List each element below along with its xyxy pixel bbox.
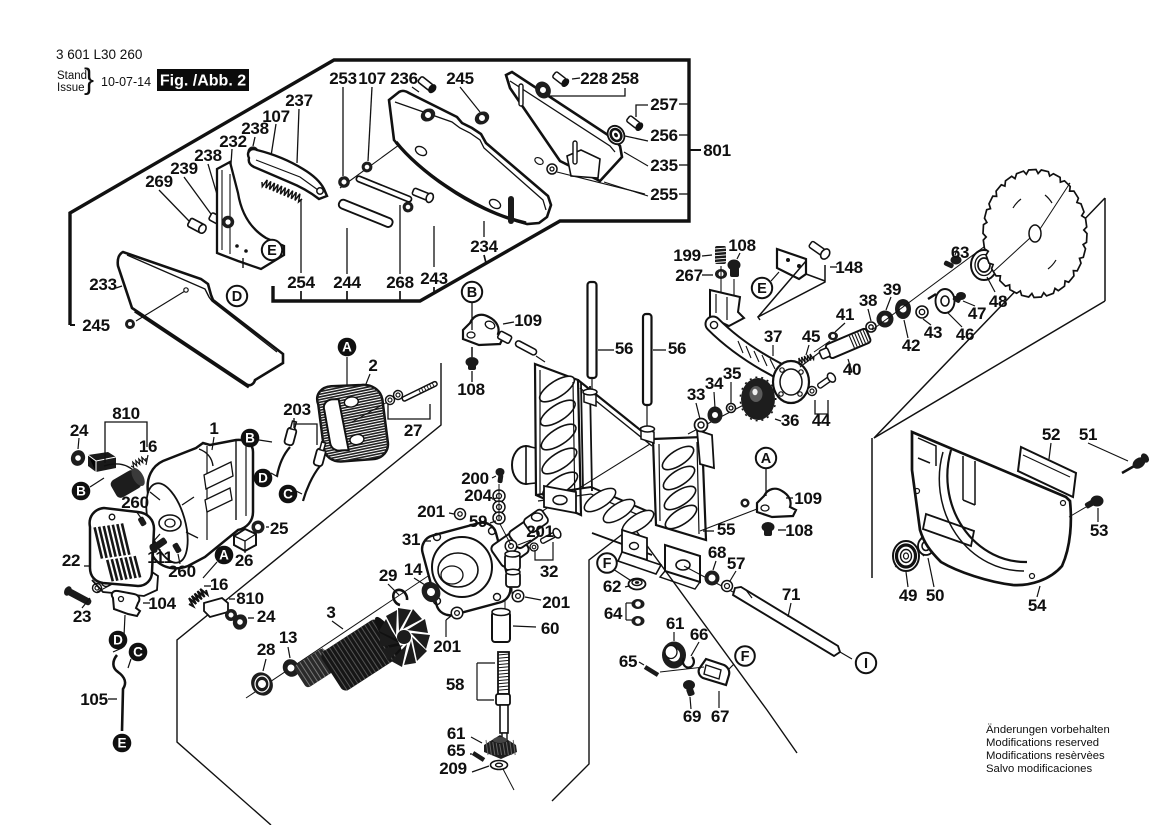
svg-text:16: 16: [210, 575, 228, 594]
svg-text:38: 38: [859, 291, 877, 310]
svg-text:F: F: [603, 556, 612, 572]
svg-text:269: 269: [145, 172, 172, 191]
svg-text:67: 67: [711, 707, 729, 726]
svg-text:201: 201: [433, 637, 460, 656]
svg-text:233: 233: [89, 275, 116, 294]
svg-text:234: 234: [470, 237, 498, 256]
svg-text:66: 66: [690, 625, 708, 644]
svg-text:65: 65: [447, 741, 465, 760]
svg-text:C: C: [283, 487, 293, 502]
svg-text:40: 40: [843, 360, 861, 379]
svg-text:24: 24: [257, 607, 276, 626]
svg-text:65: 65: [619, 652, 637, 671]
svg-text:56: 56: [615, 339, 633, 358]
svg-text:27: 27: [404, 421, 422, 440]
svg-text:42: 42: [902, 336, 920, 355]
svg-text:57: 57: [727, 554, 745, 573]
svg-text:24: 24: [70, 421, 89, 440]
svg-text:256: 256: [650, 126, 677, 145]
svg-text:49: 49: [899, 586, 917, 605]
svg-text:260: 260: [121, 493, 148, 512]
svg-text:235: 235: [650, 156, 677, 175]
svg-text:37: 37: [764, 327, 782, 346]
svg-text:51: 51: [1079, 425, 1097, 444]
svg-text:Änderungen vorbehalten: Änderungen vorbehalten: [986, 724, 1110, 736]
svg-text:36: 36: [781, 411, 799, 430]
svg-text:108: 108: [457, 380, 484, 399]
svg-text:801: 801: [703, 141, 730, 160]
svg-text:47: 47: [968, 304, 986, 323]
svg-text:46: 46: [956, 325, 974, 344]
svg-text:E: E: [117, 736, 126, 751]
svg-text:56: 56: [668, 339, 686, 358]
svg-text:245: 245: [446, 69, 473, 88]
svg-text:Modifications resèrvèes: Modifications resèrvèes: [986, 750, 1105, 762]
svg-text:}: }: [84, 63, 94, 96]
svg-text:25: 25: [270, 519, 288, 538]
svg-text:41: 41: [836, 305, 854, 324]
svg-text:Issue: Issue: [57, 82, 85, 94]
svg-text:260: 260: [168, 562, 195, 581]
svg-text:13: 13: [279, 628, 297, 647]
svg-text:A: A: [219, 548, 229, 563]
svg-text:48: 48: [989, 292, 1007, 311]
svg-text:D: D: [232, 289, 242, 305]
svg-text:109: 109: [514, 311, 541, 330]
svg-text:239: 239: [170, 159, 197, 178]
svg-text:32: 32: [540, 562, 558, 581]
svg-text:108: 108: [728, 236, 755, 255]
svg-text:105: 105: [80, 690, 107, 709]
svg-text:64: 64: [604, 604, 623, 623]
svg-text:Fig. /Abb. 2: Fig. /Abb. 2: [160, 73, 246, 90]
svg-text:33: 33: [687, 385, 705, 404]
svg-text:45: 45: [802, 327, 820, 346]
svg-text:59: 59: [469, 512, 487, 531]
svg-text:26: 26: [235, 551, 253, 570]
svg-text:D: D: [258, 471, 268, 486]
svg-text:268: 268: [386, 273, 413, 292]
svg-text:107: 107: [358, 69, 385, 88]
svg-text:243: 243: [420, 269, 447, 288]
svg-text:28: 28: [257, 640, 275, 659]
svg-text:104: 104: [148, 594, 176, 613]
svg-text:3 601 L30 260: 3 601 L30 260: [56, 47, 142, 62]
svg-text:63: 63: [951, 243, 969, 262]
svg-text:54: 54: [1028, 596, 1047, 615]
svg-text:B: B: [245, 431, 255, 446]
svg-text:31: 31: [402, 530, 420, 549]
svg-text:810: 810: [236, 589, 263, 608]
svg-text:3: 3: [326, 603, 335, 622]
svg-text:61: 61: [666, 614, 684, 633]
svg-text:E: E: [267, 243, 277, 259]
svg-text:257: 257: [650, 95, 677, 114]
svg-text:2: 2: [368, 356, 377, 375]
svg-text:58: 58: [446, 675, 464, 694]
svg-text:201: 201: [417, 502, 444, 521]
svg-text:22: 22: [62, 551, 80, 570]
svg-text:254: 254: [287, 273, 315, 292]
svg-text:29: 29: [379, 566, 397, 585]
svg-text:D: D: [113, 633, 123, 648]
svg-text:236: 236: [390, 69, 417, 88]
svg-text:199: 199: [673, 246, 700, 265]
svg-text:204: 204: [464, 486, 492, 505]
svg-text:B: B: [76, 484, 86, 499]
svg-text:A: A: [761, 451, 772, 467]
svg-text:258: 258: [611, 69, 638, 88]
svg-text:245: 245: [82, 316, 109, 335]
svg-text:F: F: [741, 649, 750, 665]
svg-text:203: 203: [283, 400, 310, 419]
svg-text:1: 1: [209, 419, 218, 438]
svg-text:Salvo modificaciones: Salvo modificaciones: [986, 763, 1092, 775]
svg-text:B: B: [467, 285, 477, 301]
svg-text:50: 50: [926, 586, 944, 605]
svg-text:14: 14: [404, 560, 423, 579]
svg-text:60: 60: [541, 619, 559, 638]
svg-text:23: 23: [73, 607, 91, 626]
svg-text:55: 55: [717, 520, 735, 539]
svg-text:69: 69: [683, 707, 701, 726]
svg-text:53: 53: [1090, 521, 1108, 540]
svg-text:43: 43: [924, 323, 942, 342]
svg-text:108: 108: [785, 521, 812, 540]
svg-text:68: 68: [708, 543, 726, 562]
svg-text:A: A: [342, 340, 352, 355]
svg-text:39: 39: [883, 280, 901, 299]
svg-text:244: 244: [333, 273, 361, 292]
svg-text:148: 148: [835, 258, 862, 277]
svg-text:52: 52: [1042, 425, 1060, 444]
svg-text:34: 34: [705, 374, 724, 393]
svg-text:255: 255: [650, 185, 677, 204]
svg-text:10-07-14: 10-07-14: [101, 75, 151, 89]
svg-text:35: 35: [723, 364, 741, 383]
svg-text:201: 201: [526, 522, 553, 541]
svg-text:228: 228: [580, 69, 607, 88]
svg-text:109: 109: [794, 489, 821, 508]
svg-text:232: 232: [219, 132, 246, 151]
svg-text:267: 267: [675, 266, 702, 285]
svg-text:71: 71: [782, 585, 800, 604]
svg-text:16: 16: [139, 437, 157, 456]
svg-text:209: 209: [439, 759, 466, 778]
svg-text:238: 238: [194, 146, 221, 165]
svg-text:C: C: [133, 645, 143, 660]
svg-text:E: E: [757, 281, 767, 297]
svg-text:62: 62: [603, 577, 621, 596]
svg-text:I: I: [864, 656, 868, 672]
svg-text:Modifications reserved: Modifications reserved: [986, 737, 1099, 749]
svg-text:201: 201: [542, 593, 569, 612]
svg-text:253: 253: [329, 69, 356, 88]
svg-text:Stand: Stand: [57, 70, 87, 82]
svg-text:810: 810: [112, 404, 139, 423]
